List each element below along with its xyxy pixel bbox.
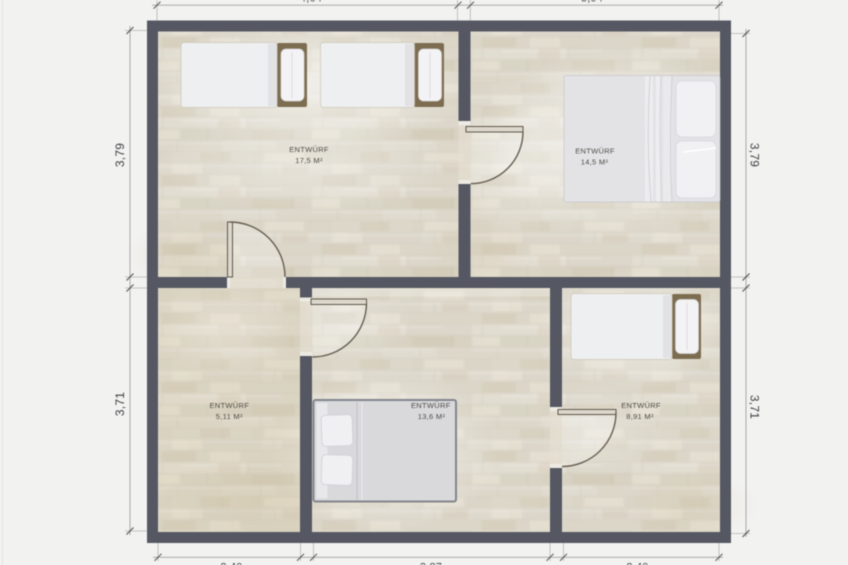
svg-text:14,5 M²: 14,5 M² bbox=[581, 158, 609, 167]
svg-text:ENTWÜRF: ENTWÜRF bbox=[575, 146, 615, 155]
svg-text:8,91 M²: 8,91 M² bbox=[626, 412, 654, 421]
svg-text:17,5 M²: 17,5 M² bbox=[295, 156, 323, 165]
svg-text:5,11 M²: 5,11 M² bbox=[216, 412, 243, 421]
svg-text:4,64: 4,64 bbox=[300, 0, 322, 4]
svg-text:3,71: 3,71 bbox=[748, 395, 762, 419]
svg-text:ENTWÜRF: ENTWÜRF bbox=[411, 401, 451, 410]
svg-text:ENTWÜRF: ENTWÜRF bbox=[289, 145, 329, 154]
svg-text:ENTWÜRF: ENTWÜRF bbox=[210, 401, 250, 410]
svg-text:13,6 M²: 13,6 M² bbox=[418, 412, 446, 421]
svg-text:3,94: 3,94 bbox=[581, 0, 603, 4]
svg-text:3,87: 3,87 bbox=[420, 562, 442, 565]
svg-text:3,79: 3,79 bbox=[113, 143, 127, 167]
svg-text:3,79: 3,79 bbox=[748, 143, 762, 167]
svg-text:3,71: 3,71 bbox=[113, 392, 127, 416]
svg-text:2,40: 2,40 bbox=[626, 562, 648, 565]
svg-text:ENTWÜRF: ENTWÜRF bbox=[621, 401, 661, 410]
svg-text:2,40: 2,40 bbox=[220, 562, 242, 565]
